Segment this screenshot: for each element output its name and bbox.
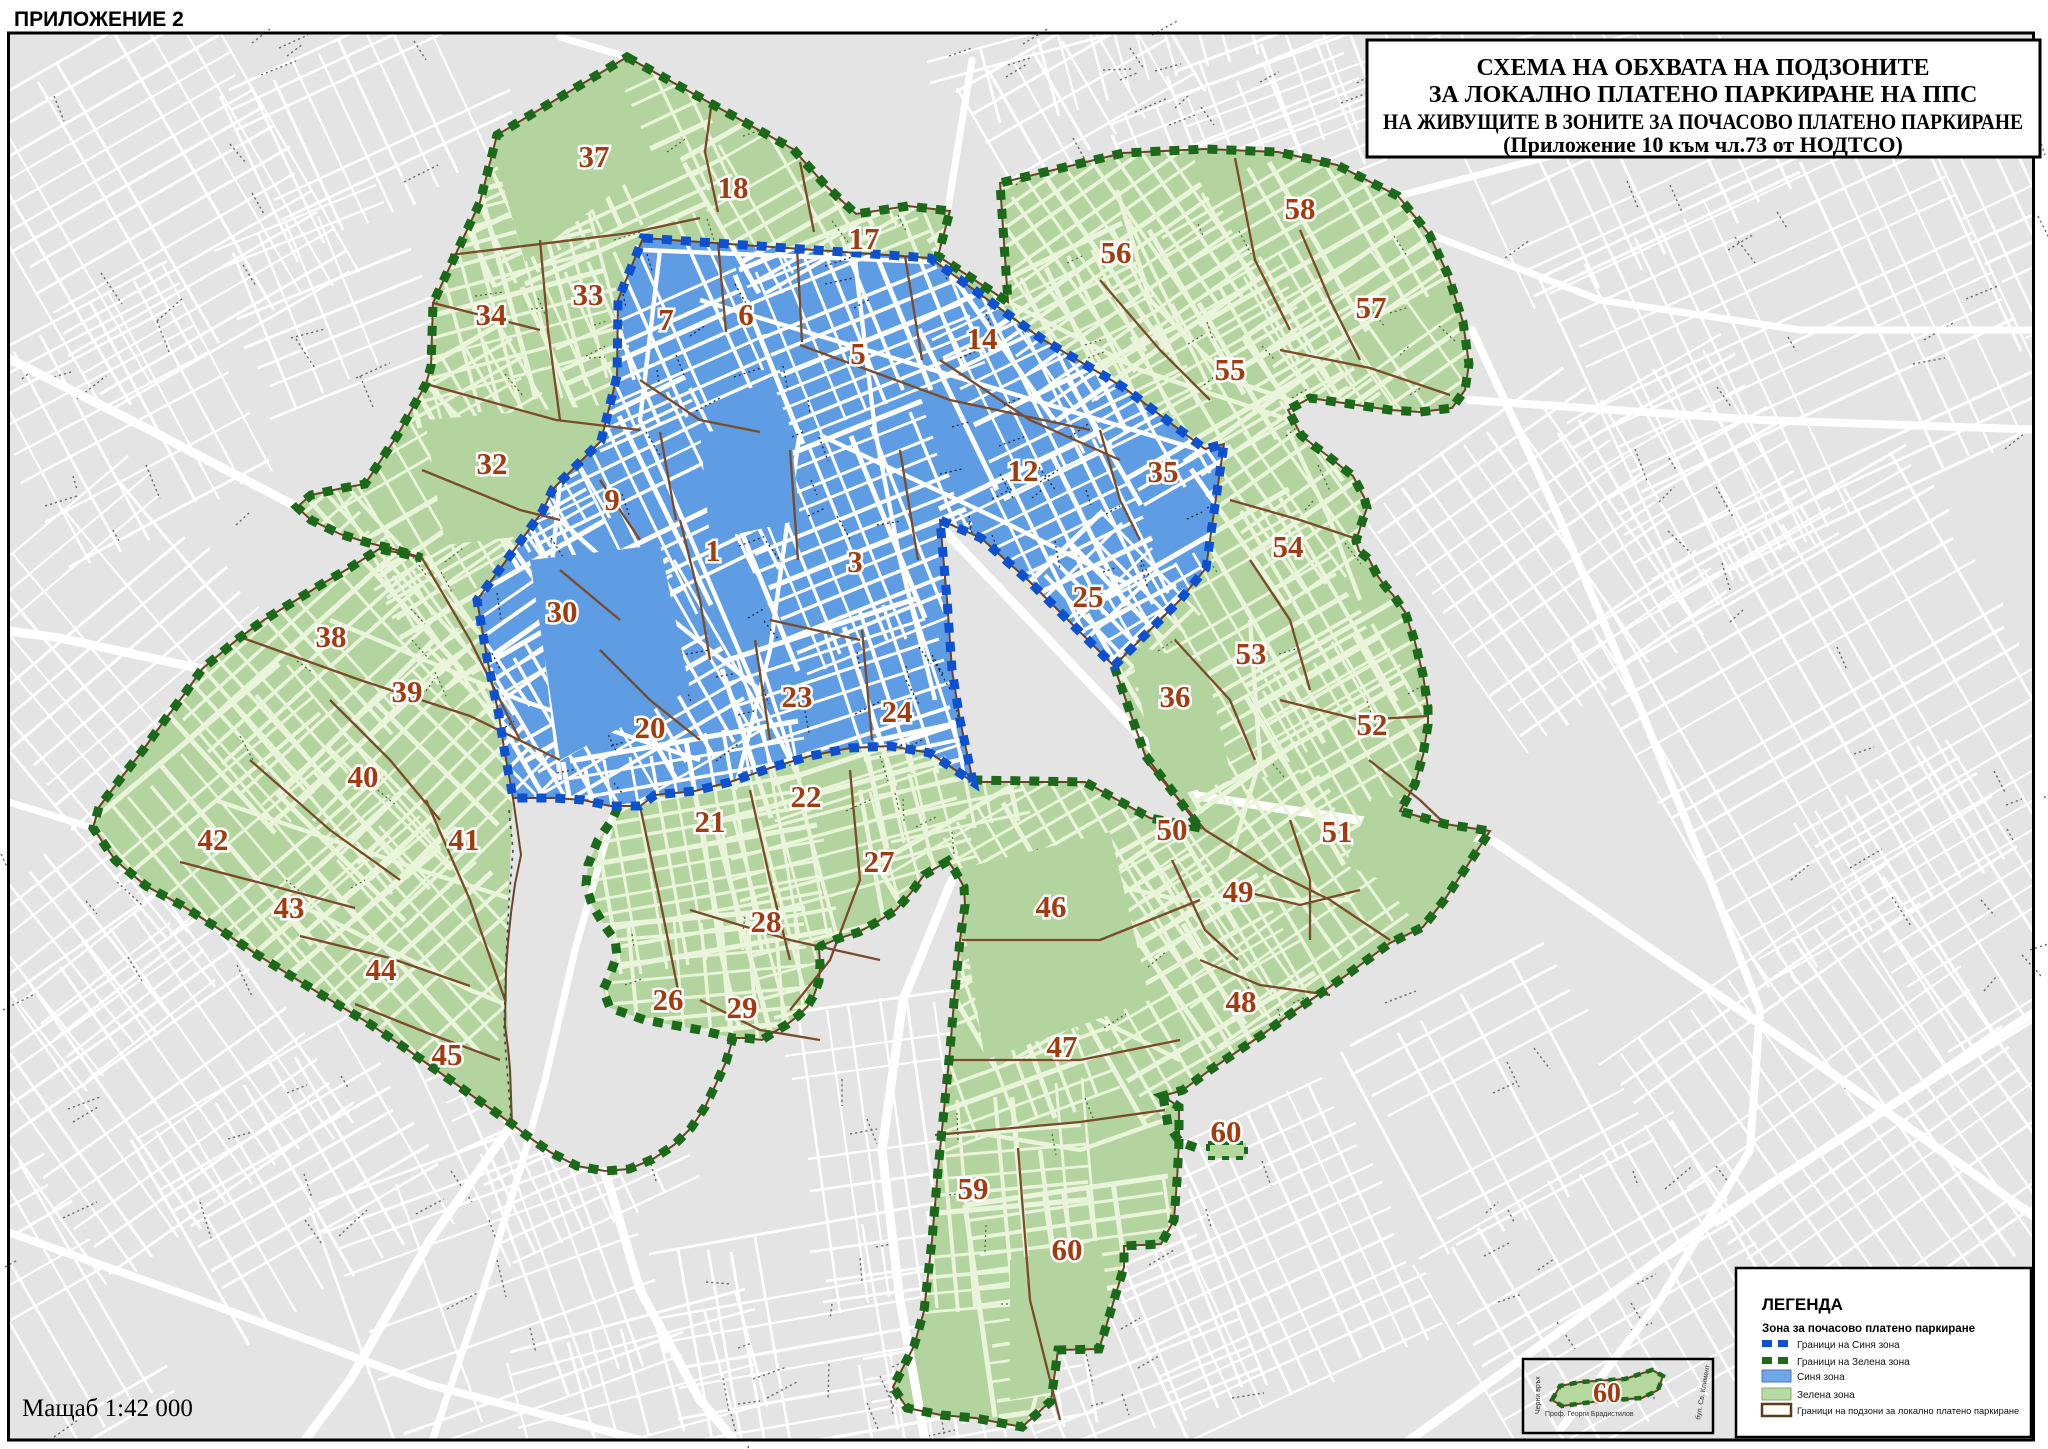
svg-text:53: 53: [1236, 636, 1267, 671]
svg-text:35: 35: [1148, 454, 1179, 489]
svg-text:44: 44: [366, 952, 397, 987]
svg-text:7: 7: [658, 302, 674, 337]
svg-text:52: 52: [1357, 707, 1388, 742]
svg-text:6: 6: [738, 297, 754, 332]
svg-text:14: 14: [967, 321, 998, 356]
svg-text:43: 43: [274, 890, 305, 925]
svg-text:НА ЖИВУЩИТЕ В ЗОНИТЕ ЗА ПОЧАСО: НА ЖИВУЩИТЕ В ЗОНИТЕ ЗА ПОЧАСОВО ПЛАТЕНО…: [1383, 109, 2023, 134]
svg-text:1: 1: [705, 533, 721, 568]
svg-text:37: 37: [579, 139, 610, 174]
svg-text:23: 23: [782, 679, 813, 714]
svg-text:54: 54: [1273, 529, 1304, 564]
svg-text:42: 42: [198, 822, 229, 857]
svg-text:22: 22: [791, 779, 822, 814]
svg-text:46: 46: [1036, 889, 1067, 924]
svg-text:Зона за почасово платено парки: Зона за почасово платено паркиране: [1762, 1323, 1975, 1335]
svg-text:ЛЕГЕНДА: ЛЕГЕНДА: [1762, 1295, 1843, 1314]
svg-text:26: 26: [653, 982, 684, 1017]
svg-text:34: 34: [476, 297, 507, 332]
svg-text:5: 5: [850, 336, 866, 371]
svg-text:ПРИЛОЖЕНИЕ 2: ПРИЛОЖЕНИЕ 2: [14, 8, 184, 31]
svg-text:ЗА ЛОКАЛНО ПЛАТЕНО ПАРКИРАНЕ Н: ЗА ЛОКАЛНО ПЛАТЕНО ПАРКИРАНЕ НА ППС: [1429, 82, 1978, 108]
svg-text:33: 33: [573, 277, 604, 312]
svg-text:49: 49: [1223, 874, 1254, 909]
svg-text:Черни връх: Черни връх: [1535, 1376, 1542, 1414]
svg-text:45: 45: [432, 1037, 463, 1072]
svg-text:29: 29: [727, 990, 758, 1025]
svg-text:47: 47: [1047, 1029, 1078, 1064]
svg-text:57: 57: [1356, 290, 1387, 325]
svg-text:60: 60: [1593, 1378, 1621, 1409]
svg-text:38: 38: [316, 619, 347, 654]
svg-text:Зелена зона: Зелена зона: [1797, 1390, 1855, 1401]
svg-text:20: 20: [635, 710, 666, 745]
svg-text:17: 17: [849, 221, 880, 256]
svg-text:59: 59: [958, 1171, 989, 1206]
svg-text:Мащаб 1:42 000: Мащаб 1:42 000: [22, 1395, 193, 1422]
svg-text:21: 21: [695, 804, 726, 839]
svg-text:27: 27: [864, 844, 895, 879]
svg-text:3: 3: [847, 544, 863, 579]
svg-text:51: 51: [1322, 814, 1353, 849]
svg-text:60: 60: [1052, 1232, 1083, 1267]
svg-text:Граници на Зелена зона: Граници на Зелена зона: [1797, 1357, 1910, 1368]
svg-text:60: 60: [1211, 1114, 1242, 1149]
svg-text:32: 32: [477, 446, 508, 481]
svg-text:41: 41: [449, 822, 480, 857]
svg-text:56: 56: [1101, 235, 1132, 270]
svg-text:58: 58: [1285, 191, 1316, 226]
svg-text:Синя зона: Синя зона: [1797, 1372, 1845, 1383]
svg-text:18: 18: [718, 170, 749, 205]
svg-text:25: 25: [1073, 579, 1104, 614]
svg-text:28: 28: [751, 904, 782, 939]
svg-text:30: 30: [547, 594, 578, 629]
svg-text:36: 36: [1160, 679, 1191, 714]
svg-text:СХЕМА НА ОБХВАТА НА ПОДЗОНИТЕ: СХЕМА НА ОБХВАТА НА ПОДЗОНИТЕ: [1476, 55, 1929, 81]
svg-text:9: 9: [604, 482, 620, 517]
svg-text:(Приложение 10 към чл.73 от НО: (Приложение 10 към чл.73 от НОДТСО): [1503, 132, 1903, 157]
svg-text:39: 39: [392, 674, 423, 709]
svg-text:48: 48: [1226, 984, 1257, 1019]
svg-text:Проф. Георги Брадистилов: Проф. Георги Брадистилов: [1545, 1411, 1634, 1418]
svg-text:50: 50: [1157, 812, 1188, 847]
svg-text:Граници на подзони за локално: Граници на подзони за локално платено па…: [1797, 1406, 2019, 1416]
svg-text:24: 24: [882, 694, 913, 729]
svg-text:Граници на Синя зона: Граници на Синя зона: [1797, 1340, 1900, 1351]
svg-text:40: 40: [348, 759, 379, 794]
svg-text:12: 12: [1008, 453, 1039, 488]
svg-text:55: 55: [1215, 352, 1246, 387]
